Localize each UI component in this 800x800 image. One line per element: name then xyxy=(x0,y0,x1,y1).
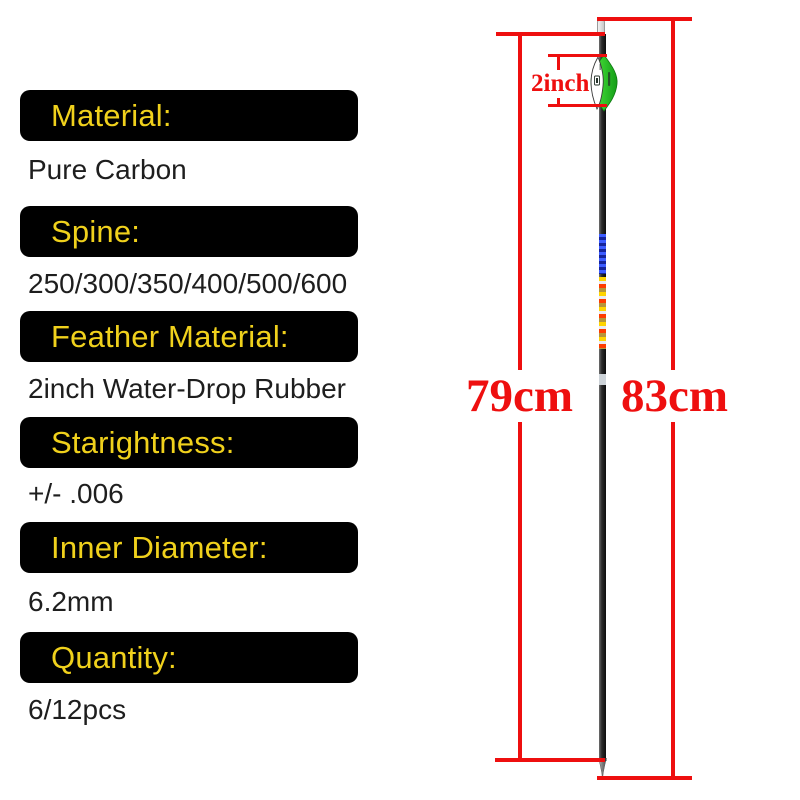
spec-label: Material: xyxy=(51,90,371,141)
dim-83-bottom-line xyxy=(597,776,692,780)
spec-value: 2inch Water-Drop Rubber xyxy=(28,371,388,407)
spec-label: Inner Diameter: xyxy=(51,522,371,573)
spec-label-box: Feather Material: xyxy=(20,311,358,362)
spec-value: 250/300/350/400/500/600 xyxy=(28,266,388,302)
dim-79-label: 79cm xyxy=(466,370,572,422)
spec-label-box: Starightness: xyxy=(20,417,358,468)
spec-label: Quantity: xyxy=(51,632,371,683)
shaft-branding-blue xyxy=(599,234,606,274)
product-infographic: Material: Pure Carbon Spine: 250/300/350… xyxy=(0,0,800,800)
spec-value: 6.2mm xyxy=(28,584,388,620)
shaft-branding-small xyxy=(599,374,606,385)
spec-label: Starightness: xyxy=(51,417,371,468)
spec-label-box: Spine: xyxy=(20,206,358,257)
dim-83-label: 83cm xyxy=(621,370,723,422)
spec-label: Spine: xyxy=(51,206,371,257)
shaft-branding-multi xyxy=(599,277,606,349)
spec-value: Pure Carbon xyxy=(28,152,388,188)
spec-value: 6/12pcs xyxy=(28,692,388,728)
spec-label-box: Inner Diameter: xyxy=(20,522,358,573)
dim-79-top-line xyxy=(496,32,605,36)
dim-2inch-bottom-line xyxy=(548,104,607,107)
spec-label-box: Quantity: xyxy=(20,632,358,683)
spec-label: Feather Material: xyxy=(51,311,371,362)
spec-value: +/- .006 xyxy=(28,476,388,512)
dim-79-bottom-line xyxy=(495,758,605,762)
dim-83-top-line xyxy=(597,17,692,21)
dim-2inch-label: 2inch xyxy=(531,70,587,98)
arrow-shaft xyxy=(599,34,606,760)
spec-label-box: Material: xyxy=(20,90,358,141)
